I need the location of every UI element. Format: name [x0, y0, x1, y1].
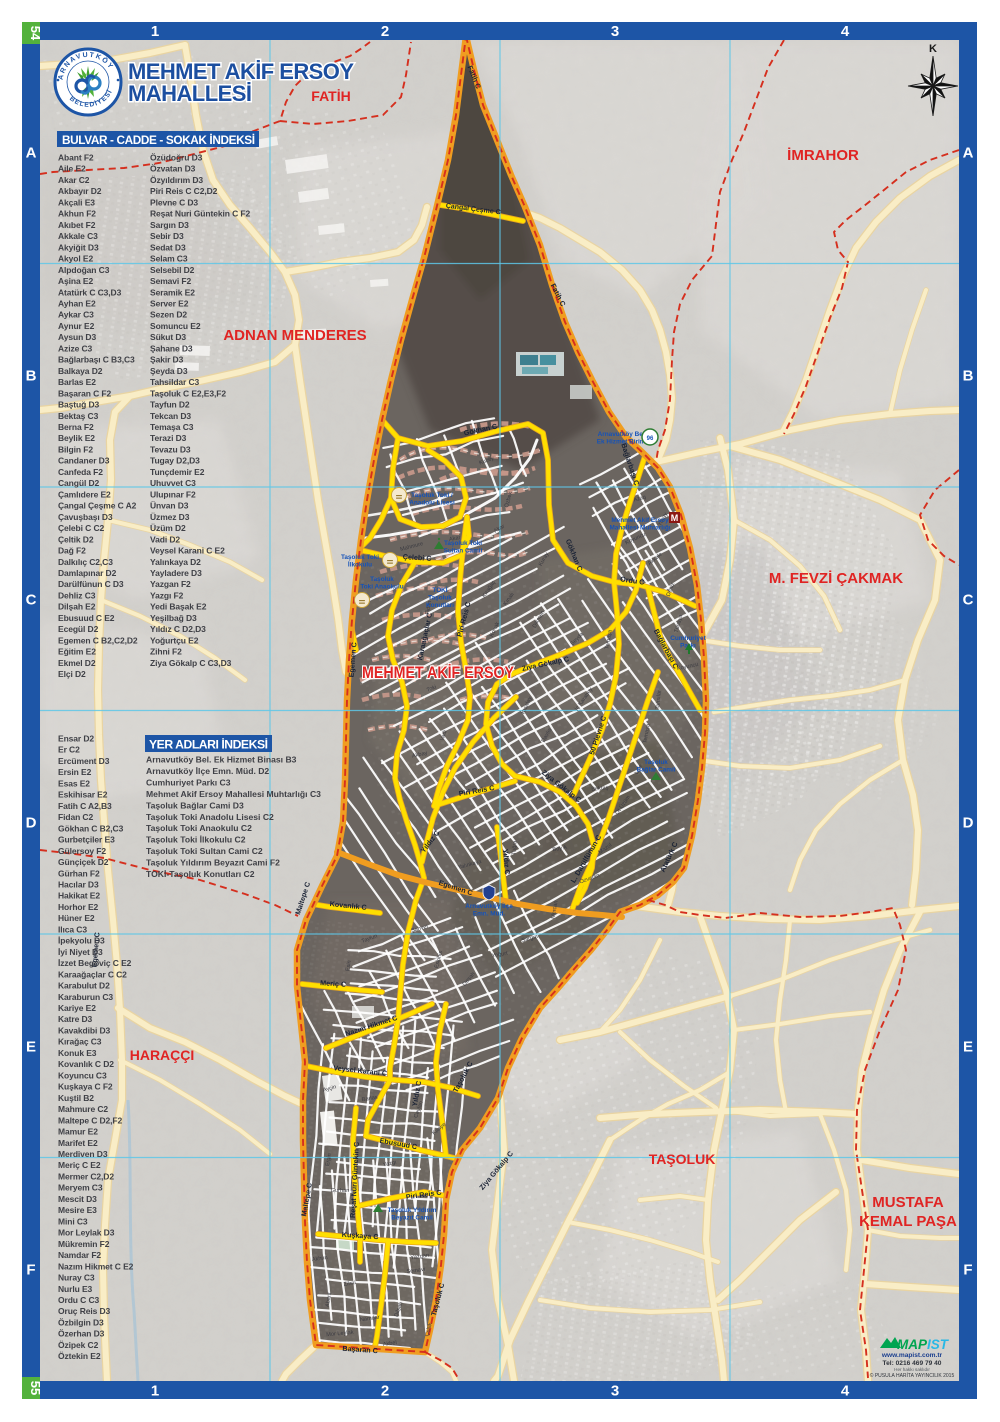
svg-text:Elçi D2: Elçi D2 — [58, 669, 86, 679]
svg-text:Baştuğ D3: Baştuğ D3 — [58, 400, 100, 410]
svg-text:Sultan Camii: Sultan Camii — [444, 547, 483, 554]
svg-text:TOKİ: TOKİ — [432, 585, 447, 594]
svg-text:TOKİ-Taşoluk Konutları C2: TOKİ-Taşoluk Konutları C2 — [146, 869, 255, 879]
svg-text:Karaağaçlar C C2: Karaağaçlar C C2 — [58, 969, 127, 979]
svg-text:C: C — [26, 592, 37, 609]
svg-text:Oruç Reis D3: Oruç Reis D3 — [58, 1306, 111, 1316]
svg-text:Kuştil B2: Kuştil B2 — [58, 1093, 94, 1103]
svg-text:Dalkılıç C2,C3: Dalkılıç C2,C3 — [58, 557, 113, 567]
svg-text:Akçali E3: Akçali E3 — [58, 197, 95, 207]
svg-text:Maltepe C D2,F2: Maltepe C D2,F2 — [58, 1115, 123, 1125]
svg-text:Her hakkı saklıdır: Her hakkı saklıdır — [894, 1367, 930, 1372]
svg-text:Çeltik D2: Çeltik D2 — [58, 534, 94, 544]
svg-text:Yayladere D3: Yayladere D3 — [150, 568, 202, 578]
svg-text:Emn. Müd.: Emn. Müd. — [473, 910, 506, 917]
svg-text:Özbilgin D3: Özbilgin D3 — [58, 1318, 104, 1328]
svg-text:Aykar C3: Aykar C3 — [58, 310, 94, 320]
svg-text:3: 3 — [611, 1383, 619, 1400]
svg-text:Karabulut D2: Karabulut D2 — [58, 981, 110, 991]
svg-text:Ayhan E2: Ayhan E2 — [58, 299, 96, 309]
svg-text:Şahane D3: Şahane D3 — [150, 343, 193, 353]
svg-text:E: E — [26, 1039, 36, 1056]
svg-text:Mescit D3: Mescit D3 — [58, 1194, 97, 1204]
svg-text:Cumhuriyet Parkı C3: Cumhuriyet Parkı C3 — [146, 777, 231, 787]
svg-text:Kırağaç C3: Kırağaç C3 — [58, 1037, 102, 1047]
svg-text:Balkaya D2: Balkaya D2 — [58, 366, 103, 376]
svg-text:2: 2 — [381, 23, 389, 40]
svg-text:Ebusuud C E2: Ebusuud C E2 — [58, 613, 115, 623]
svg-text:Abant F2: Abant F2 — [58, 153, 94, 163]
svg-text:MUSTAFA: MUSTAFA — [872, 1194, 944, 1211]
svg-text:Veysel Karani C E2: Veysel Karani C E2 — [150, 546, 225, 556]
svg-text:1: 1 — [151, 1383, 159, 1400]
svg-text:Eskihisar E2: Eskihisar E2 — [58, 790, 108, 800]
svg-text:İyi Niyet D3: İyi Niyet D3 — [58, 947, 103, 957]
svg-text:Ekmel D2: Ekmel D2 — [58, 658, 96, 668]
svg-text:Ordu C C3: Ordu C C3 — [58, 1295, 100, 1305]
svg-text:Kavakdibi D3: Kavakdibi D3 — [58, 1026, 111, 1036]
svg-text:⚌: ⚌ — [396, 492, 403, 501]
svg-text:B: B — [963, 368, 974, 385]
svg-text:Plevne C D3: Plevne C D3 — [150, 197, 198, 207]
svg-text:BULVAR - CADDE - SOKAK İNDEKSİ: BULVAR - CADDE - SOKAK İNDEKSİ — [62, 133, 255, 147]
svg-text:Tahsildar C3: Tahsildar C3 — [150, 377, 200, 387]
svg-text:Mini C3: Mini C3 — [58, 1216, 88, 1226]
svg-text:Karaburun C3: Karaburun C3 — [58, 992, 113, 1002]
svg-text:Beylik E2: Beylik E2 — [58, 433, 95, 443]
svg-text:Anadolu Lisesi: Anadolu Lisesi — [409, 499, 455, 506]
svg-text:Şakir D3: Şakir D3 — [150, 355, 184, 365]
svg-text:D: D — [26, 815, 37, 832]
svg-text:KEMAL PAŞA: KEMAL PAŞA — [859, 1213, 957, 1230]
svg-text:Berna F2: Berna F2 — [58, 422, 94, 432]
svg-text:Ecegül D2: Ecegül D2 — [58, 624, 99, 634]
svg-text:Akkale C3: Akkale C3 — [58, 231, 98, 241]
svg-text:Barlas E2: Barlas E2 — [58, 377, 96, 387]
svg-text:Özüdoğru D3: Özüdoğru D3 — [150, 153, 203, 163]
svg-text:Mehmet Akif Ersoy: Mehmet Akif Ersoy — [611, 517, 669, 524]
svg-text:Gülersoy F2: Gülersoy F2 — [58, 846, 106, 856]
svg-text:Başaran C F2: Başaran C F2 — [58, 388, 112, 398]
svg-text:Dehliz C3: Dehliz C3 — [58, 591, 96, 601]
svg-text:Taşoluk Bağlar Cami D3: Taşoluk Bağlar Cami D3 — [146, 800, 244, 810]
svg-text:Aile E2: Aile E2 — [58, 164, 86, 174]
svg-text:Somuncu E2: Somuncu E2 — [150, 321, 201, 331]
svg-text:Konutları: Konutları — [426, 602, 454, 609]
svg-text:1: 1 — [151, 23, 159, 40]
svg-text:Çangal Çeşme C A2: Çangal Çeşme C A2 — [58, 501, 137, 511]
svg-text:Taşoluk Toki Anadolu Lisesi C2: Taşoluk Toki Anadolu Lisesi C2 — [146, 812, 274, 822]
svg-text:Gurbetçiler E3: Gurbetçiler E3 — [58, 835, 115, 845]
svg-text:Selam C3: Selam C3 — [150, 254, 188, 264]
svg-text:Mahallesi Muhtarlığı: Mahallesi Muhtarlığı — [609, 524, 670, 531]
svg-text:Cangül D2: Cangül D2 — [58, 478, 100, 488]
svg-text:MAHALLESİ: MAHALLESİ — [128, 81, 252, 106]
svg-text:Nuray C3: Nuray C3 — [58, 1273, 95, 1283]
svg-text:Üzmez D3: Üzmez D3 — [150, 512, 190, 522]
svg-text:2: 2 — [381, 1383, 389, 1400]
svg-text:Tevazu D3: Tevazu D3 — [150, 445, 191, 455]
svg-text:Taşoluk: Taşoluk — [428, 594, 452, 601]
svg-text:Reşat Nuri Güntekin C F2: Reşat Nuri Güntekin C F2 — [150, 209, 250, 219]
svg-text:C: C — [963, 592, 974, 609]
svg-text:Yoğurtçu E2: Yoğurtçu E2 — [150, 635, 199, 645]
svg-text:Üzüm D2: Üzüm D2 — [150, 523, 186, 533]
svg-text:Damlapınar D2: Damlapınar D2 — [58, 568, 117, 578]
svg-text:Tayfun D2: Tayfun D2 — [150, 400, 190, 410]
svg-text:Tunçdemir E2: Tunçdemir E2 — [150, 467, 205, 477]
svg-text:A: A — [26, 145, 37, 162]
svg-text:Çamlıdere E2: Çamlıdere E2 — [58, 489, 111, 499]
svg-text:Ziya Gökalp C C3,D3: Ziya Gökalp C C3,D3 — [150, 658, 232, 668]
svg-text:Özerhan D3: Özerhan D3 — [58, 1329, 105, 1339]
svg-text:Ünvan D3: Ünvan D3 — [150, 501, 189, 511]
svg-text:Taşoluk C E2,E3,F2: Taşoluk C E2,E3,F2 — [150, 388, 226, 398]
svg-text:Yıldız C D2,D3: Yıldız C D2,D3 — [150, 624, 206, 634]
svg-text:Ilıca C3: Ilıca C3 — [58, 924, 87, 934]
svg-text:Aynur E2: Aynur E2 — [58, 321, 95, 331]
svg-text:Egemen C B2,C2,D2: Egemen C B2,C2,D2 — [58, 635, 138, 645]
svg-text:Aşina E2: Aşina E2 — [58, 276, 93, 286]
svg-text:ADNAN MENDERES: ADNAN MENDERES — [223, 327, 366, 344]
svg-text:B: B — [26, 368, 37, 385]
svg-text:Tugay D2,D3: Tugay D2,D3 — [150, 456, 200, 466]
svg-text:Uhuvvet C3: Uhuvvet C3 — [150, 478, 196, 488]
svg-text:Gürhan F2: Gürhan F2 — [58, 868, 100, 878]
svg-text:Ulupınar F2: Ulupınar F2 — [150, 489, 196, 499]
svg-text:Taşoluk Toki İlkokulu C2: Taşoluk Toki İlkokulu C2 — [146, 835, 246, 845]
svg-text:Taşoluk Toki /: Taşoluk Toki / — [411, 492, 453, 499]
svg-text:Sebir D3: Sebir D3 — [150, 231, 184, 241]
svg-text:Toki Anaokulu: Toki Anaokulu — [360, 583, 403, 590]
svg-text:Vadi D2: Vadi D2 — [150, 534, 180, 544]
svg-text:Taşoluk Toki: Taşoluk Toki — [444, 540, 482, 547]
svg-text:F: F — [963, 1262, 972, 1279]
svg-text:M. FEVZİ ÇAKMAK: M. FEVZİ ÇAKMAK — [769, 570, 903, 587]
svg-text:HARAÇÇI: HARAÇÇI — [130, 1047, 195, 1063]
svg-text:Candaner D3: Candaner D3 — [58, 456, 110, 466]
svg-text:Gurhan: Gurhan — [331, 1188, 350, 1194]
svg-text:Tel: 0216 469 79 40: Tel: 0216 469 79 40 — [883, 1360, 942, 1367]
svg-text:Server E2: Server E2 — [150, 299, 189, 309]
svg-text:Günçiçek D2: Günçiçek D2 — [58, 857, 109, 867]
svg-text:Dağ F2: Dağ F2 — [58, 546, 86, 556]
svg-text:4: 4 — [841, 23, 850, 40]
svg-text:A: A — [963, 145, 974, 162]
svg-text:Seramik E2: Seramik E2 — [150, 287, 195, 297]
svg-text:İzzet Begoviç C E2: İzzet Begoviç C E2 — [58, 958, 132, 968]
svg-text:Bilgin F2: Bilgin F2 — [58, 445, 93, 455]
svg-text:Akhun F2: Akhun F2 — [58, 209, 96, 219]
svg-text:Taşoluk Toki Sultan Cami C2: Taşoluk Toki Sultan Cami C2 — [146, 846, 263, 856]
svg-text:Fidan C2: Fidan C2 — [58, 812, 93, 822]
svg-text:Merdiven D3: Merdiven D3 — [58, 1149, 108, 1159]
svg-text:İlkokulu: İlkokulu — [348, 559, 372, 568]
svg-text:Gökhan C B2,C3: Gökhan C B2,C3 — [58, 823, 124, 833]
svg-text:Koyuncu C3: Koyuncu C3 — [58, 1070, 107, 1080]
svg-text:Çavuşbaşı D3: Çavuşbaşı D3 — [58, 512, 113, 522]
svg-text:Taşoluk Toki: Taşoluk Toki — [341, 554, 379, 561]
svg-text:Yeşilbağ D3: Yeşilbağ D3 — [150, 613, 197, 623]
svg-text:Yalınkaya D2: Yalınkaya D2 — [150, 557, 201, 567]
svg-text:Öztekin E2: Öztekin E2 — [58, 1351, 101, 1361]
svg-text:Ersin E2: Ersin E2 — [58, 767, 92, 777]
svg-text:İpekyolu D3: İpekyolu D3 — [58, 936, 105, 946]
svg-text:Mor Leylak D3: Mor Leylak D3 — [58, 1228, 115, 1238]
svg-text:Azize C3: Azize C3 — [58, 343, 93, 353]
svg-text:Akar C2: Akar C2 — [58, 175, 90, 185]
svg-text:Beyazıt Camii: Beyazıt Camii — [391, 1214, 433, 1221]
svg-text:Zihni F2: Zihni F2 — [150, 647, 182, 657]
svg-text:M: M — [671, 513, 679, 523]
svg-text:Ek Hizmet Birimi: Ek Hizmet Birimi — [597, 438, 648, 445]
svg-text:Er C2: Er C2 — [58, 745, 80, 755]
svg-text:E: E — [963, 1039, 973, 1056]
svg-text:Kuşkaya C F2: Kuşkaya C F2 — [58, 1082, 113, 1092]
svg-text:Meriç C: Meriç C — [320, 978, 347, 989]
svg-text:Horhor E2: Horhor E2 — [58, 902, 99, 912]
svg-text:Hacılar D3: Hacılar D3 — [58, 880, 99, 890]
svg-text:Yedi Başak E2: Yedi Başak E2 — [150, 602, 207, 612]
svg-text:3: 3 — [611, 23, 619, 40]
svg-text:Yazgı F2: Yazgı F2 — [150, 591, 184, 601]
svg-text:Arnavutköy İlçe Emn. Müd. D2: Arnavutköy İlçe Emn. Müd. D2 — [146, 766, 269, 776]
svg-text:TAŞOLUK: TAŞOLUK — [649, 1151, 716, 1167]
svg-text:Taşoluk Yıldırım Beyazıt Cami: Taşoluk Yıldırım Beyazıt Cami F2 — [146, 858, 280, 868]
svg-text:Mamur E2: Mamur E2 — [58, 1127, 98, 1137]
svg-text:Selsebil D2: Selsebil D2 — [150, 265, 195, 275]
svg-text:Marifet E2: Marifet E2 — [58, 1138, 98, 1148]
svg-text:Mükremin F2: Mükremin F2 — [58, 1239, 110, 1249]
svg-text:Meriç C E2: Meriç C E2 — [58, 1160, 101, 1170]
svg-text:D: D — [963, 815, 974, 832]
svg-text:Nurlu E3: Nurlu E3 — [58, 1284, 93, 1294]
svg-text:⚌: ⚌ — [359, 597, 366, 606]
svg-text:Arnavutköy Bel. Ek Hizmet Bina: Arnavutköy Bel. Ek Hizmet Binası B3 — [146, 755, 297, 765]
svg-text:Aysun D3: Aysun D3 — [58, 332, 96, 342]
svg-text:Semavi F2: Semavi F2 — [150, 276, 192, 286]
svg-text:Akbayır D2: Akbayır D2 — [58, 186, 102, 196]
svg-text:⚌: ⚌ — [387, 557, 394, 566]
svg-text:Kovanlık C D2: Kovanlık C D2 — [58, 1059, 114, 1069]
svg-text:54: 54 — [28, 26, 43, 41]
svg-text:Mermer C2,D2: Mermer C2,D2 — [58, 1172, 114, 1182]
svg-text:Çelebi C C2: Çelebi C C2 — [58, 523, 105, 533]
svg-text:Taşoluk Yıldırım: Taşoluk Yıldırım — [388, 1207, 437, 1214]
svg-text:Hüner E2: Hüner E2 — [58, 913, 95, 923]
svg-text:Eğitim E2: Eğitim E2 — [58, 647, 96, 657]
svg-text:Şeyda D3: Şeyda D3 — [150, 366, 188, 376]
svg-text:K: K — [929, 43, 937, 55]
svg-text:F: F — [26, 1262, 35, 1279]
svg-text:96: 96 — [647, 436, 654, 442]
svg-text:Akyol E2: Akyol E2 — [58, 254, 93, 264]
svg-text:Atatürk C C3,D3: Atatürk C C3,D3 — [58, 287, 122, 297]
svg-text:Meryem C3: Meryem C3 — [58, 1183, 103, 1193]
svg-text:Akıbet F2: Akıbet F2 — [58, 220, 96, 230]
svg-text:www.mapist.com.tr: www.mapist.com.tr — [881, 1352, 943, 1359]
svg-text:Özyıldırım D3: Özyıldırım D3 — [150, 175, 203, 185]
svg-text:Özvatan D3: Özvatan D3 — [150, 164, 196, 174]
svg-text:4: 4 — [841, 1383, 850, 1400]
svg-text:Taşoluk: Taşoluk — [370, 576, 394, 583]
svg-text:Fatih C A2,B3: Fatih C A2,B3 — [58, 801, 112, 811]
svg-text:Sedat D3: Sedat D3 — [150, 242, 186, 252]
svg-text:Katre D3: Katre D3 — [58, 1014, 93, 1024]
svg-text:Kariye E2: Kariye E2 — [58, 1003, 96, 1013]
svg-text:Hakikat E2: Hakikat E2 — [58, 891, 100, 901]
svg-text:Arnavutköy İlçe: Arnavutköy İlçe — [465, 901, 513, 910]
svg-text:Canfeda F2: Canfeda F2 — [58, 467, 103, 477]
svg-text:MEHMET AKİF ERSOY: MEHMET AKİF ERSOY — [362, 663, 515, 682]
svg-text:Sargın D3: Sargın D3 — [150, 220, 189, 230]
svg-text:Yazgan F2: Yazgan F2 — [150, 579, 191, 589]
svg-text:Tekcan D3: Tekcan D3 — [150, 411, 191, 421]
svg-text:MAPIST: MAPIST — [897, 1337, 950, 1352]
svg-text:Temaşa C3: Temaşa C3 — [150, 422, 194, 432]
svg-text:Mahmure C2: Mahmure C2 — [58, 1104, 108, 1114]
svg-text:Taşoluk Toki Anaokulu C2: Taşoluk Toki Anaokulu C2 — [146, 823, 252, 833]
svg-text:Cumhuriyet: Cumhuriyet — [670, 635, 706, 642]
svg-text:Taşoluk: Taşoluk — [644, 759, 668, 766]
svg-text:Bektaş C3: Bektaş C3 — [58, 411, 99, 421]
svg-text:Ensar D2: Ensar D2 — [58, 734, 94, 744]
svg-text:Piri Reis C C2,D2: Piri Reis C C2,D2 — [150, 186, 218, 196]
svg-text:Mesire E3: Mesire E3 — [58, 1205, 97, 1215]
svg-text:FATİH: FATİH — [311, 88, 350, 104]
svg-text:Mehmet Akif Ersoy Mahallesi Mu: Mehmet Akif Ersoy Mahallesi Muhtarlığı C… — [146, 789, 321, 799]
svg-text:İMRAHOR: İMRAHOR — [787, 147, 859, 164]
svg-text:Namdar F2: Namdar F2 — [58, 1250, 101, 1260]
svg-text:Terazi D3: Terazi D3 — [150, 433, 187, 443]
svg-text:Sezen D2: Sezen D2 — [150, 310, 187, 320]
svg-text:Akyiğit D3: Akyiğit D3 — [58, 242, 99, 252]
svg-text:Nazım Hikmet C E2: Nazım Hikmet C E2 — [58, 1261, 134, 1271]
svg-text:Sükut D3: Sükut D3 — [150, 332, 186, 342]
svg-text:Özipek C2: Özipek C2 — [58, 1340, 99, 1350]
svg-text:Bağlarbaşı C B3,C3: Bağlarbaşı C B3,C3 — [58, 355, 135, 365]
svg-text:YER ADLARI İNDEKSİ: YER ADLARI İNDEKSİ — [149, 737, 268, 752]
svg-text:Konuk E3: Konuk E3 — [58, 1048, 97, 1058]
svg-text:© PUSULA HARİTA YAYINCILIK 201: © PUSULA HARİTA YAYINCILIK 2015 — [870, 1372, 955, 1379]
svg-text:Darülfünun C D3: Darülfünun C D3 — [58, 579, 124, 589]
svg-text:Ercüment D3: Ercüment D3 — [58, 756, 110, 766]
svg-text:Dilşah E2: Dilşah E2 — [58, 602, 96, 612]
svg-text:Esas E2: Esas E2 — [58, 778, 90, 788]
svg-text:Arnavutköy Bel.: Arnavutköy Bel. — [598, 431, 647, 438]
svg-text:55: 55 — [28, 1381, 43, 1395]
svg-text:Alpdoğan C3: Alpdoğan C3 — [58, 265, 110, 275]
